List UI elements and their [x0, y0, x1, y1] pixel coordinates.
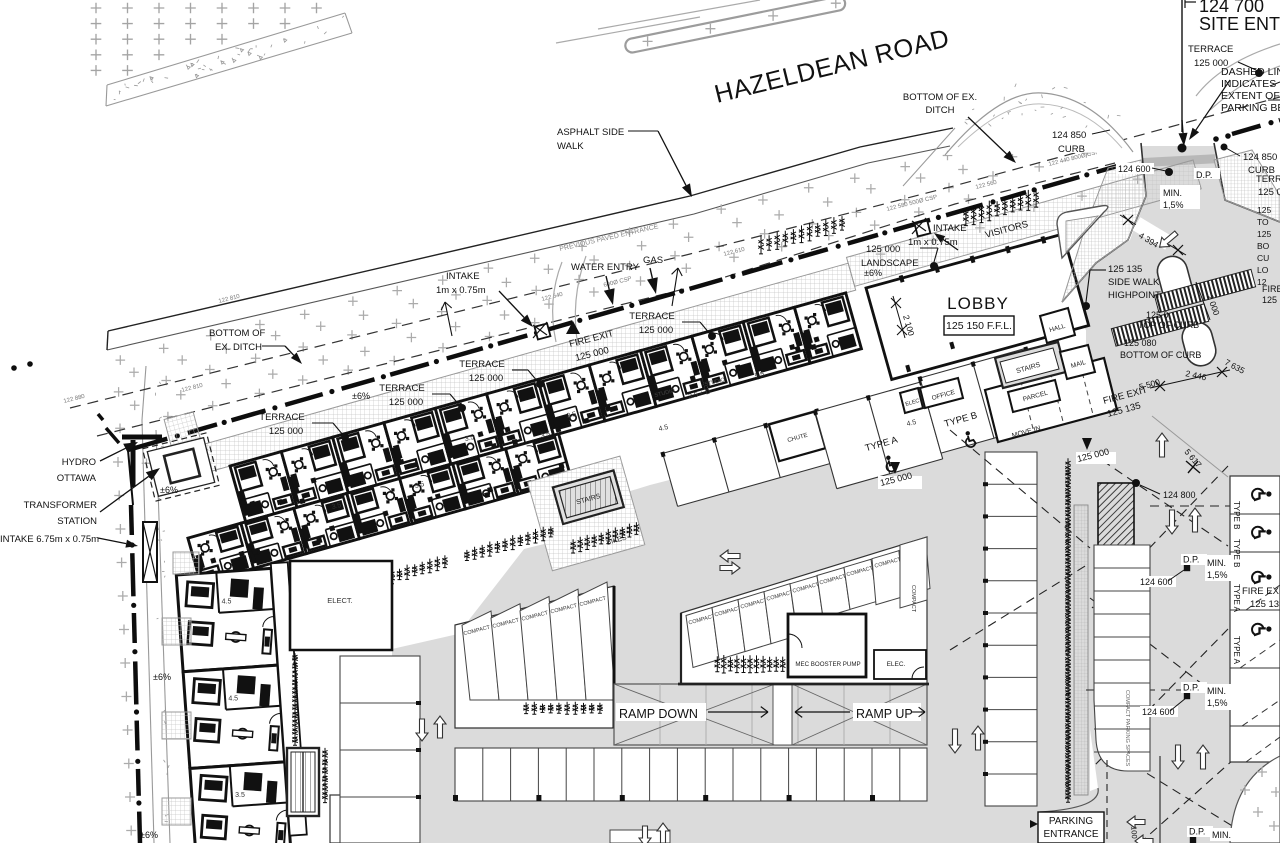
svg-text:1,5%: 1,5%	[1163, 200, 1184, 210]
svg-text:FIRE: FIRE	[1262, 284, 1280, 294]
svg-text:INTAKE: INTAKE	[933, 223, 967, 234]
svg-text:SITE ENTR: SITE ENTR	[1199, 14, 1280, 34]
svg-text:MIN.: MIN.	[1212, 830, 1231, 840]
svg-text:125: 125	[1257, 205, 1271, 215]
svg-text:D.P.: D.P.	[1196, 170, 1212, 180]
svg-text:GAS: GAS	[643, 255, 663, 266]
svg-text:125 000: 125 000	[639, 325, 673, 336]
svg-text:D.P.: D.P.	[1189, 827, 1205, 837]
svg-text:ELECT.: ELECT.	[327, 596, 352, 605]
svg-text:124 600: 124 600	[1118, 164, 1151, 174]
svg-text:124 600: 124 600	[1142, 707, 1175, 717]
svg-text:125 080: 125 080	[1124, 338, 1157, 348]
svg-text:TERRACE: TERRACE	[259, 412, 304, 423]
svg-text:±6%: ±6%	[160, 485, 178, 495]
svg-text:124 850: 124 850	[1052, 130, 1086, 141]
svg-text:1m x 0.75m: 1m x 0.75m	[436, 285, 486, 296]
svg-text:125: 125	[1257, 229, 1271, 239]
svg-text:±6%: ±6%	[140, 830, 158, 840]
svg-text:125 000: 125 000	[389, 397, 423, 408]
svg-text:4.5: 4.5	[228, 695, 238, 702]
svg-text:124 800: 124 800	[1163, 490, 1196, 500]
svg-text:TYPE A: TYPE A	[1232, 584, 1241, 613]
svg-text:OTTAWA: OTTAWA	[57, 473, 97, 484]
svg-text:124 850: 124 850	[1243, 152, 1277, 163]
svg-text:CURB: CURB	[1058, 144, 1085, 155]
svg-text:TOP OF CURB: TOP OF CURB	[1138, 320, 1199, 330]
svg-text:MIN.: MIN.	[1207, 558, 1226, 568]
svg-text:4.5: 4.5	[222, 599, 232, 606]
svg-text:TERRACE: TERRACE	[629, 311, 674, 322]
svg-text:ENTRANCE: ENTRANCE	[1043, 829, 1098, 840]
svg-text:STATION: STATION	[57, 516, 97, 527]
svg-text:PARKING: PARKING	[1049, 816, 1093, 827]
svg-text:MIN.: MIN.	[1207, 686, 1226, 696]
svg-text:TRANSFORMER: TRANSFORMER	[24, 500, 98, 511]
svg-text:BO: BO	[1257, 241, 1270, 251]
svg-text:INTAKE: INTAKE	[446, 271, 480, 282]
svg-text:COMPACT: COMPACT	[910, 585, 916, 613]
svg-text:TERRACE: TERRACE	[459, 359, 504, 370]
svg-text:INDICATES: INDICATES	[1221, 78, 1276, 90]
svg-text:D.P.: D.P.	[1183, 683, 1199, 693]
svg-text:ELEC.: ELEC.	[887, 661, 906, 668]
svg-text:1,5%: 1,5%	[1207, 698, 1228, 708]
svg-text:125 000: 125 000	[866, 244, 900, 255]
svg-text:TYPE B: TYPE B	[1232, 501, 1241, 529]
svg-text:EX. DITCH: EX. DITCH	[215, 342, 262, 353]
svg-text:WATER ENTRY: WATER ENTRY	[571, 262, 640, 273]
svg-text:TERRACE: TERRACE	[379, 383, 424, 394]
svg-text:125 000: 125 000	[1194, 58, 1228, 69]
svg-text:PARKING BEL: PARKING BEL	[1221, 102, 1280, 114]
svg-text:LOBBY: LOBBY	[947, 294, 1009, 313]
svg-text:DITCH: DITCH	[925, 105, 954, 116]
svg-text:125 0: 125 0	[1258, 187, 1280, 198]
svg-text:BOTTOM OF EX.: BOTTOM OF EX.	[903, 92, 977, 103]
svg-text:TERR: TERR	[1256, 174, 1280, 185]
svg-text:ASPHALT SIDE: ASPHALT SIDE	[557, 127, 624, 138]
svg-text:SIDE WALK: SIDE WALK	[1108, 277, 1160, 288]
svg-text:CU: CU	[1257, 253, 1269, 263]
svg-text:1,5%: 1,5%	[1207, 570, 1228, 580]
svg-text:±6%: ±6%	[153, 672, 171, 682]
svg-text:±6%: ±6%	[352, 391, 370, 401]
svg-text:TERRACE: TERRACE	[1188, 44, 1233, 55]
svg-text:125 135: 125 135	[1250, 599, 1280, 610]
svg-text:125 150 F.F.L.: 125 150 F.F.L.	[946, 320, 1012, 332]
svg-text:COMPACT PARKING SPACES: COMPACT PARKING SPACES	[1124, 690, 1130, 767]
svg-text:125 135: 125 135	[1108, 264, 1142, 275]
svg-text:125 000: 125 000	[469, 373, 503, 384]
svg-text:±6%: ±6%	[864, 268, 882, 278]
svg-text:FIRE EXI: FIRE EXI	[1242, 586, 1280, 597]
svg-text:1m x 0.75m: 1m x 0.75m	[908, 237, 958, 248]
svg-text:125 000: 125 000	[269, 426, 303, 437]
svg-text:RAMP DOWN: RAMP DOWN	[619, 707, 698, 721]
svg-text:HIGHPOINT: HIGHPOINT	[1108, 290, 1161, 301]
svg-text:125 0: 125 0	[1146, 310, 1169, 320]
svg-text:MIN.: MIN.	[1163, 188, 1182, 198]
svg-text:INTAKE 6.75m x 0.75m: INTAKE 6.75m x 0.75m	[0, 534, 99, 545]
svg-text:BOTTOM OF: BOTTOM OF	[209, 328, 265, 339]
svg-text:LO: LO	[1257, 265, 1269, 275]
svg-text:MEC BOOSTER PUMP: MEC BOOSTER PUMP	[795, 661, 860, 668]
svg-text:WALK: WALK	[557, 141, 584, 152]
svg-text:125: 125	[1262, 295, 1277, 305]
svg-text:D.P.: D.P.	[1183, 555, 1199, 565]
svg-text:RAMP UP: RAMP UP	[856, 707, 913, 721]
svg-text:124 600: 124 600	[1140, 577, 1173, 587]
svg-text:3.5: 3.5	[235, 792, 245, 799]
svg-text:BOTTOM OF CURB: BOTTOM OF CURB	[1120, 350, 1201, 360]
svg-text:TO: TO	[1257, 217, 1269, 227]
svg-text:HYDRO: HYDRO	[62, 457, 96, 468]
svg-text:TYPE A: TYPE A	[1232, 636, 1241, 665]
svg-text:TYPE B: TYPE B	[1232, 539, 1241, 567]
